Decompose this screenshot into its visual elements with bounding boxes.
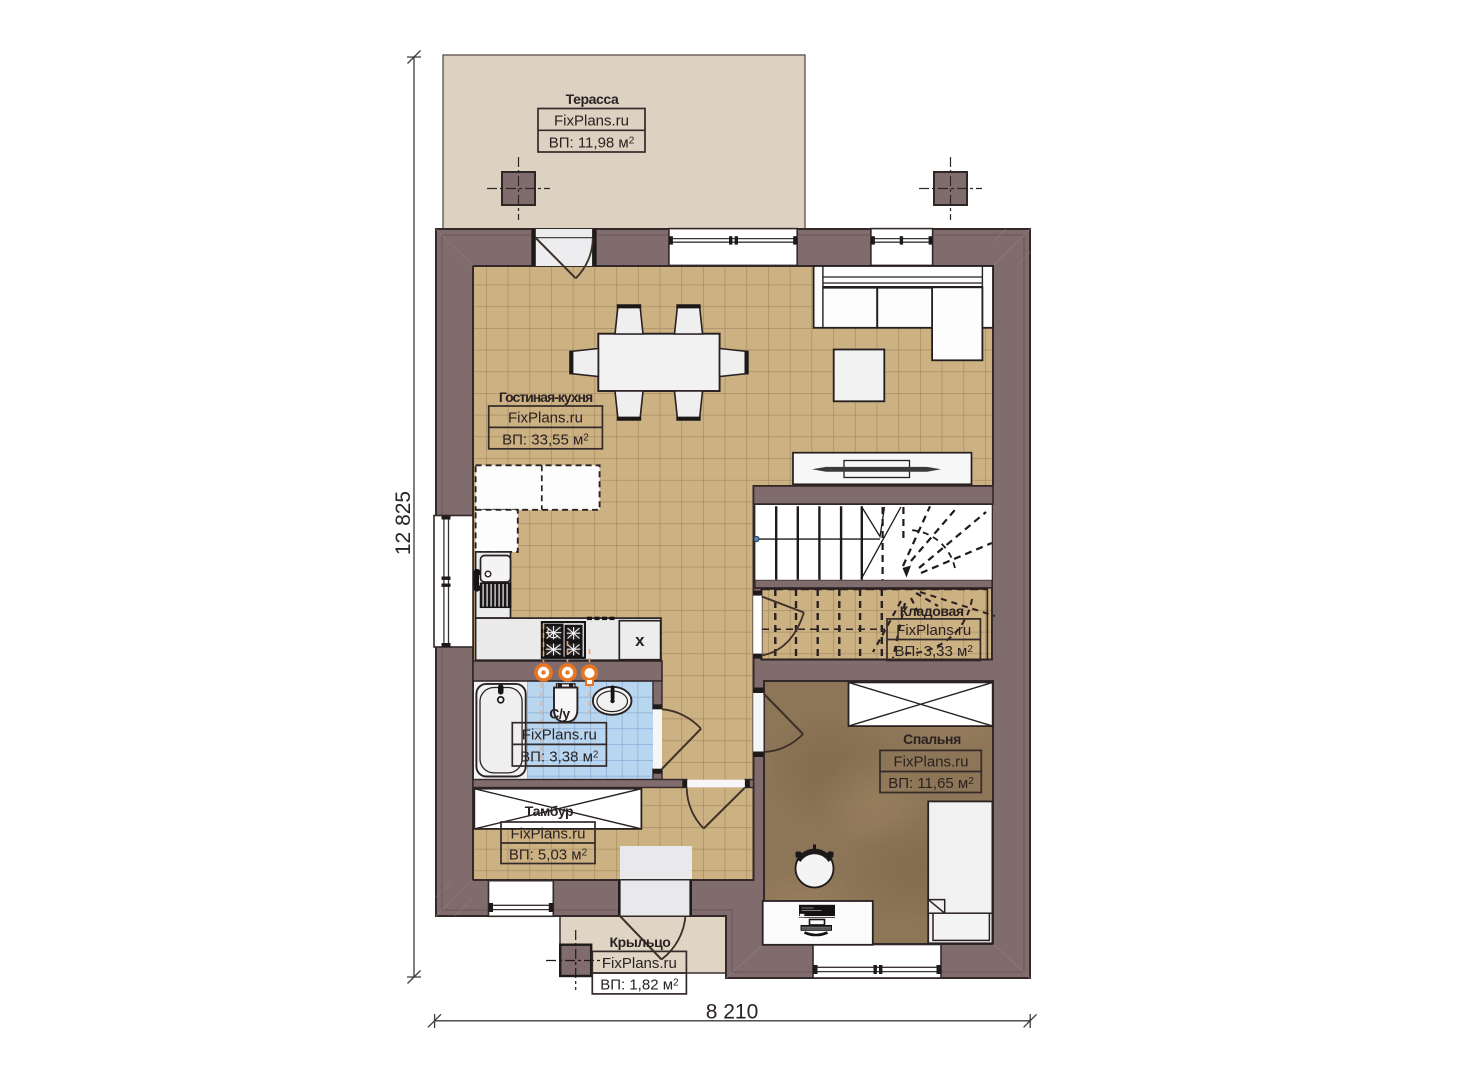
svg-text:12 825: 12 825	[392, 491, 415, 555]
svg-text:FixPlans.ru: FixPlans.ru	[522, 727, 597, 744]
svg-text:ВП: 11,65 м2: ВП: 11,65 м2	[888, 775, 974, 792]
svg-text:FixPlans.ru: FixPlans.ru	[602, 955, 677, 972]
svg-text:FixPlans.ru: FixPlans.ru	[508, 410, 583, 427]
svg-text:8 210: 8 210	[706, 1001, 759, 1024]
svg-text:С/у: С/у	[549, 706, 570, 722]
svg-text:ВП: 33,55 м2: ВП: 33,55 м2	[502, 432, 589, 449]
svg-text:x: x	[635, 631, 645, 650]
svg-text:ВП: 3,33 м2: ВП: 3,33 м2	[895, 643, 974, 660]
svg-text:Кладовая: Кладовая	[900, 603, 964, 619]
svg-text:ВП: 5,03 м2: ВП: 5,03 м2	[509, 847, 588, 864]
svg-text:FixPlans.ru: FixPlans.ru	[510, 826, 585, 843]
svg-text:FixPlans.ru: FixPlans.ru	[554, 113, 629, 130]
svg-text:Крыльцо: Крыльцо	[610, 934, 671, 950]
svg-text:Спальня: Спальня	[903, 731, 961, 747]
svg-text:ВП: 1,82 м2: ВП: 1,82 м2	[600, 977, 679, 994]
svg-text:FixPlans.ru: FixPlans.ru	[896, 622, 971, 639]
svg-text:Гостиная-кухня: Гостиная-кухня	[499, 389, 593, 405]
svg-text:ВП: 3,38 м2: ВП: 3,38 м2	[520, 749, 599, 766]
svg-text:FixPlans.ru: FixPlans.ru	[893, 754, 968, 771]
svg-text:ВП: 11,98 м2: ВП: 11,98 м2	[549, 135, 635, 152]
svg-text:Терасса: Терасса	[566, 91, 619, 107]
svg-text:Тамбур: Тамбур	[525, 803, 573, 819]
